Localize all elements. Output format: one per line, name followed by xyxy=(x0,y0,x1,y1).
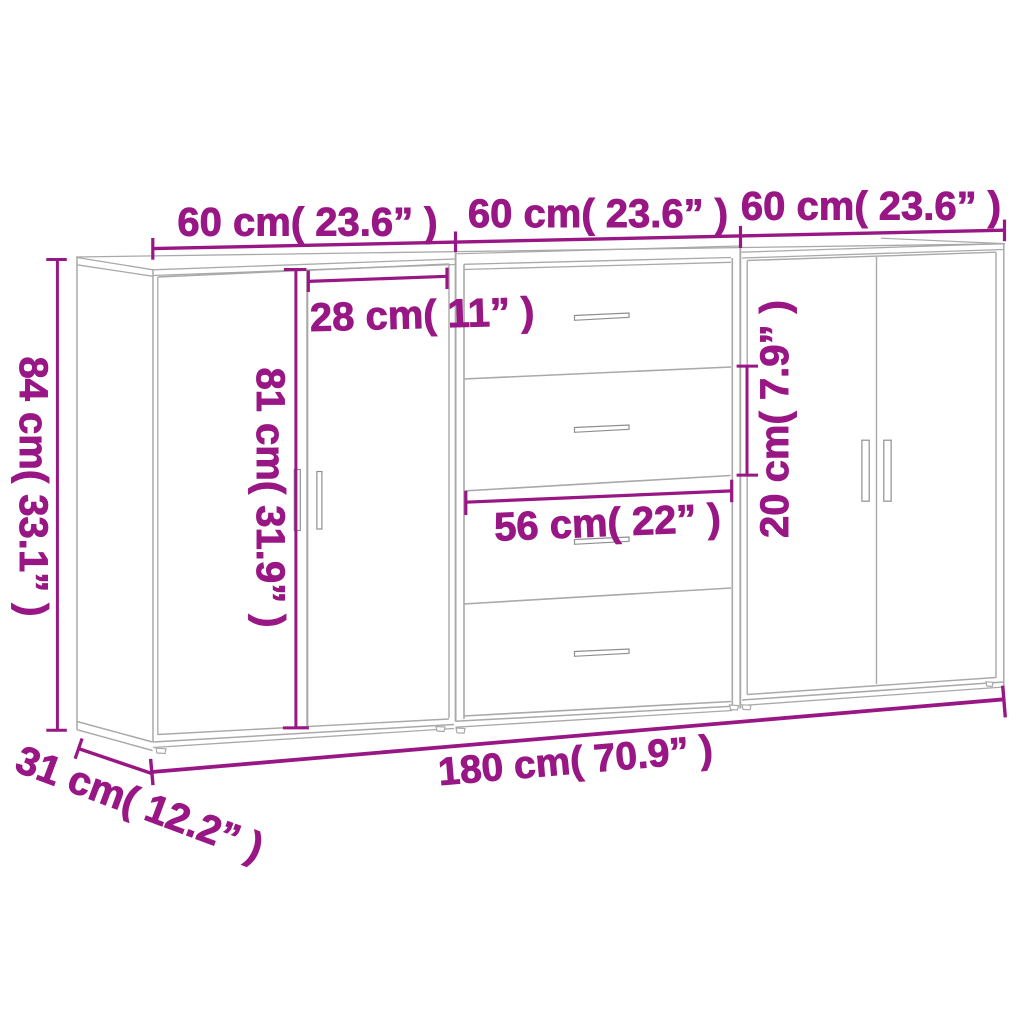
svg-text:60 cm( 23.6” ): 60 cm( 23.6” ) xyxy=(741,185,1001,229)
svg-text:60 cm( 23.6” ): 60 cm( 23.6” ) xyxy=(177,201,437,245)
svg-text:20 cm( 7.9” ): 20 cm( 7.9” ) xyxy=(753,300,797,538)
svg-text:60 cm( 23.6” ): 60 cm( 23.6” ) xyxy=(468,192,728,236)
svg-text:84 cm( 33.1” ): 84 cm( 33.1” ) xyxy=(11,356,55,616)
svg-text:81 cm( 31.9” ): 81 cm( 31.9” ) xyxy=(248,367,292,627)
svg-text:28 cm( 11” ): 28 cm( 11” ) xyxy=(309,290,535,340)
